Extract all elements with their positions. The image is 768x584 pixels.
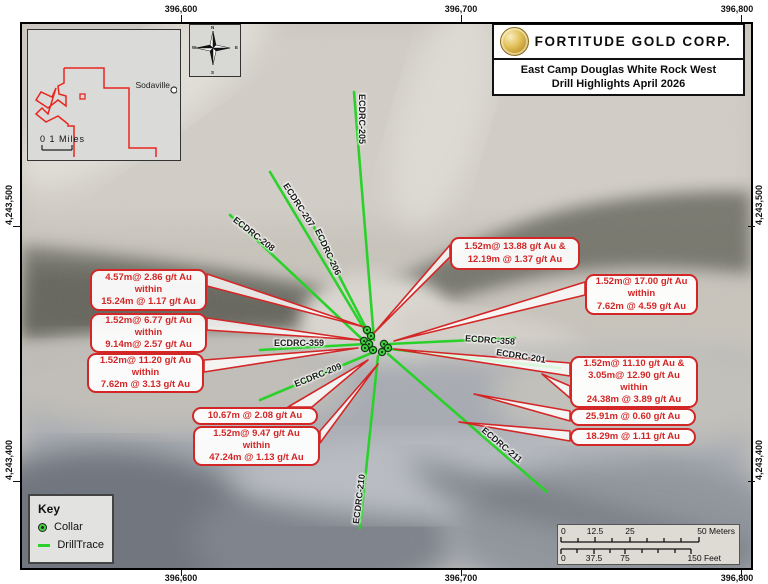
town-marker <box>171 87 177 93</box>
annotation-line: within <box>92 367 199 379</box>
callout-leader <box>207 274 364 327</box>
company-logo-row: FORTITUDE GOLD CORP. <box>492 23 745 60</box>
annotation-line: 1.52m@ 6.77 g/t Au <box>95 315 202 327</box>
legend-collar-row: Collar <box>38 521 104 533</box>
compass-w: W <box>192 45 196 50</box>
inset-scale-label: 0 1 Miles <box>40 134 85 144</box>
annotation-line: 3.05m@ 12.90 g/t Au <box>575 370 693 382</box>
compass-e: E <box>235 45 238 50</box>
tick <box>181 15 182 22</box>
tick <box>181 570 182 576</box>
company-name: FORTITUDE GOLD CORP. <box>529 34 737 49</box>
subtitle-line-1: East Camp Douglas White Rock West <box>496 63 741 77</box>
scale-bars: 0 12.5 25 50 Meters 0 37.5 75 150 Feet <box>557 524 740 565</box>
scale-meters-12-5: 12.5 <box>587 526 604 536</box>
tick <box>13 226 20 227</box>
scale-feet-0: 0 <box>561 553 566 563</box>
legend-drilltrace-row: DrillTrace <box>38 539 104 551</box>
compass-star <box>190 25 237 73</box>
compass-s: S <box>211 70 214 75</box>
scale-meters-50: 50 Meters <box>697 526 735 536</box>
map-subtitle: East Camp Douglas White Rock West Drill … <box>492 60 745 96</box>
annotation-line: 1.52m@ 17.00 g/t Au <box>590 276 693 288</box>
annotation-line: 1.52m@ 11.20 g/t Au <box>92 355 199 367</box>
legend-collar-label: Collar <box>54 521 83 533</box>
legend: Key Collar DrillTrace <box>28 494 114 564</box>
collar-marker <box>378 348 385 355</box>
inset-scale-bracket <box>42 145 72 150</box>
scale-meters-25: 25 <box>625 526 634 536</box>
annotation-box: 18.29m @ 1.11 g/t Au <box>570 428 696 446</box>
tick <box>741 15 742 22</box>
annotation-line: within <box>590 288 693 300</box>
tick <box>741 570 742 576</box>
annotation-line: within <box>198 440 315 452</box>
northing-label-left-2: 4,243,400 <box>4 440 14 480</box>
callout-leader <box>542 374 570 398</box>
annotation-line: within <box>575 382 693 394</box>
annotation-line: 12.19m @ 1.37 g/t Au <box>455 254 575 266</box>
easting-label-bottom-3: 396,800 <box>721 573 754 583</box>
collar-marker <box>361 344 368 351</box>
tick <box>461 15 462 22</box>
compass-rose: N E S W <box>189 24 241 77</box>
callout-leader <box>394 282 585 341</box>
callout-leader <box>374 245 450 333</box>
northing-label-right-1: 4,243,500 <box>754 185 764 225</box>
collar-marker <box>367 332 374 339</box>
annotation-line: 4.57m@ 2.86 g/t Au <box>95 272 202 284</box>
drill-trace-ecdrc-207 <box>270 172 367 334</box>
annotation-line: 25.91m @ 0.60 g/t Au <box>575 411 691 423</box>
title-block: FORTITUDE GOLD CORP. East Camp Douglas W… <box>492 23 745 96</box>
annotation-line: within <box>95 284 202 296</box>
easting-label-top-1: 396,600 <box>165 4 198 14</box>
town-label: Sodaville <box>136 80 171 90</box>
northing-label-left-1: 4,243,500 <box>4 185 14 225</box>
meters-ruler <box>561 537 699 542</box>
annotation-line: 15.24m @ 1.17 g/t Au <box>95 296 202 308</box>
collar-icon <box>38 523 47 532</box>
scale-feet-150: 150 Feet <box>687 553 721 563</box>
annotation-box: 1.52m@ 11.10 g/t Au & 3.05m@ 12.90 g/t A… <box>570 356 698 408</box>
annotation-box: 1.52m@ 6.77 g/t Au within 9.14m@ 2.57 g/… <box>90 313 207 353</box>
trace-label-ecdrc-205: ECDRC-205 <box>357 94 367 144</box>
legend-heading: Key <box>38 502 104 516</box>
annotation-line: 9.14m@ 2.57 g/t Au <box>95 339 202 351</box>
inset-location-map: Sodaville 0 1 Miles <box>27 29 181 161</box>
annotation-line: 47.24m @ 1.13 g/t Au <box>198 452 315 464</box>
tick <box>461 570 462 576</box>
claim-inner-parcel <box>80 94 85 99</box>
drilltrace-icon <box>38 544 50 547</box>
annotation-box: 1.52m@ 17.00 g/t Au within 7.62m @ 4.59 … <box>585 274 698 315</box>
easting-label-top-2: 396,700 <box>445 4 478 14</box>
annotation-line: 7.62m @ 4.59 g/t Au <box>590 301 693 313</box>
map-figure: 396,600 396,700 396,800 396,600 396,700 … <box>0 0 768 584</box>
annotation-line: within <box>95 327 202 339</box>
compass-n: N <box>211 25 214 30</box>
gold-coin-icon <box>500 27 529 56</box>
annotation-line: 7.62m @ 3.13 g/t Au <box>92 379 199 391</box>
annotation-box: 1.52m@ 11.20 g/t Au within 7.62m @ 3.13 … <box>87 353 204 393</box>
collar-marker <box>369 346 376 353</box>
map-frame: ECDRC-205 ECDRC-206 ECDRC-207 ECDRC-208 … <box>20 22 753 570</box>
annotation-line: 18.29m @ 1.11 g/t Au <box>575 431 691 443</box>
annotation-box: 1.52m@ 9.47 g/t Au within 47.24m @ 1.13 … <box>193 426 320 466</box>
annotation-line: 1.52m@ 11.10 g/t Au & <box>575 358 693 370</box>
legend-drilltrace-label: DrillTrace <box>57 539 104 551</box>
callout-leader <box>474 394 570 421</box>
scale-feet-75: 75 <box>620 553 629 563</box>
subtitle-line-2: Drill Highlights April 2026 <box>496 77 741 91</box>
northing-label-right-2: 4,243,400 <box>754 440 764 480</box>
annotation-line: 1.52m@ 13.88 g/t Au & <box>455 241 575 253</box>
annotation-line: 24.38m @ 3.89 g/t Au <box>575 394 693 406</box>
callout-leader <box>207 318 360 340</box>
annotation-box: 1.52m@ 13.88 g/t Au & 12.19m @ 1.37 g/t … <box>450 237 580 270</box>
annotation-line: 1.52m@ 9.47 g/t Au <box>198 428 315 440</box>
annotation-box: 4.57m@ 2.86 g/t Au within 15.24m @ 1.17 … <box>90 269 207 311</box>
scale-meters-0: 0 <box>561 526 566 536</box>
scale-feet-37-5: 37.5 <box>586 553 603 563</box>
tick <box>13 481 20 482</box>
annotation-box: 25.91m @ 0.60 g/t Au <box>570 408 696 426</box>
annotation-box: 10.67m @ 2.08 g/t Au <box>192 407 318 425</box>
easting-label-top-3: 396,800 <box>721 4 754 14</box>
annotation-line: 10.67m @ 2.08 g/t Au <box>197 410 313 422</box>
trace-label-ecdrc-359: ECDRC-359 <box>274 338 324 348</box>
